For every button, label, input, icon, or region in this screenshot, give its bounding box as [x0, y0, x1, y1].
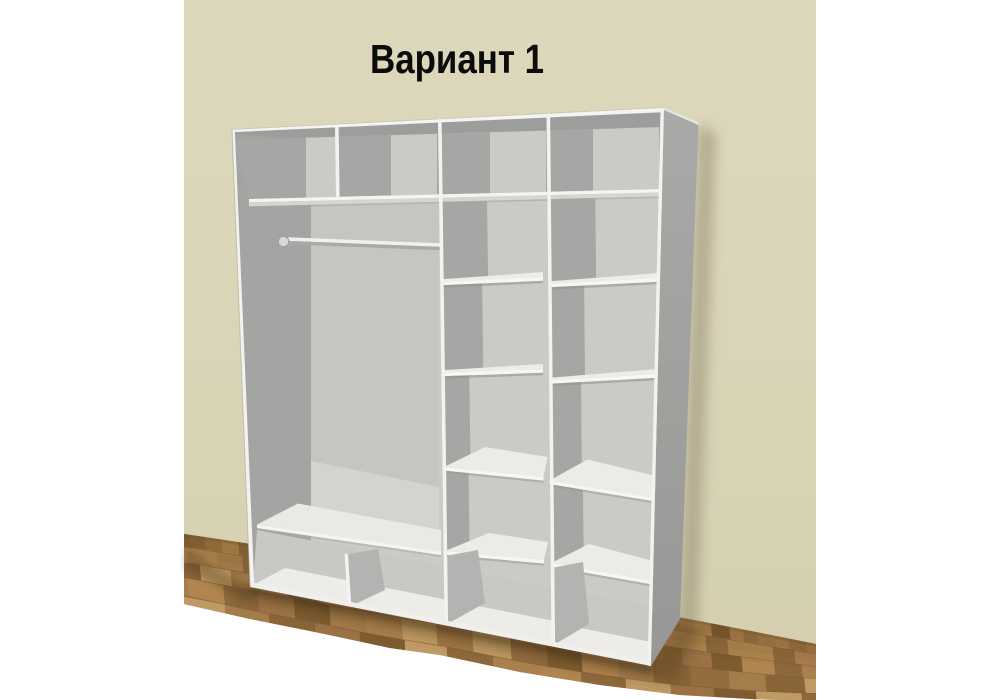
svg-text:Вариант 1: Вариант 1: [370, 36, 544, 82]
